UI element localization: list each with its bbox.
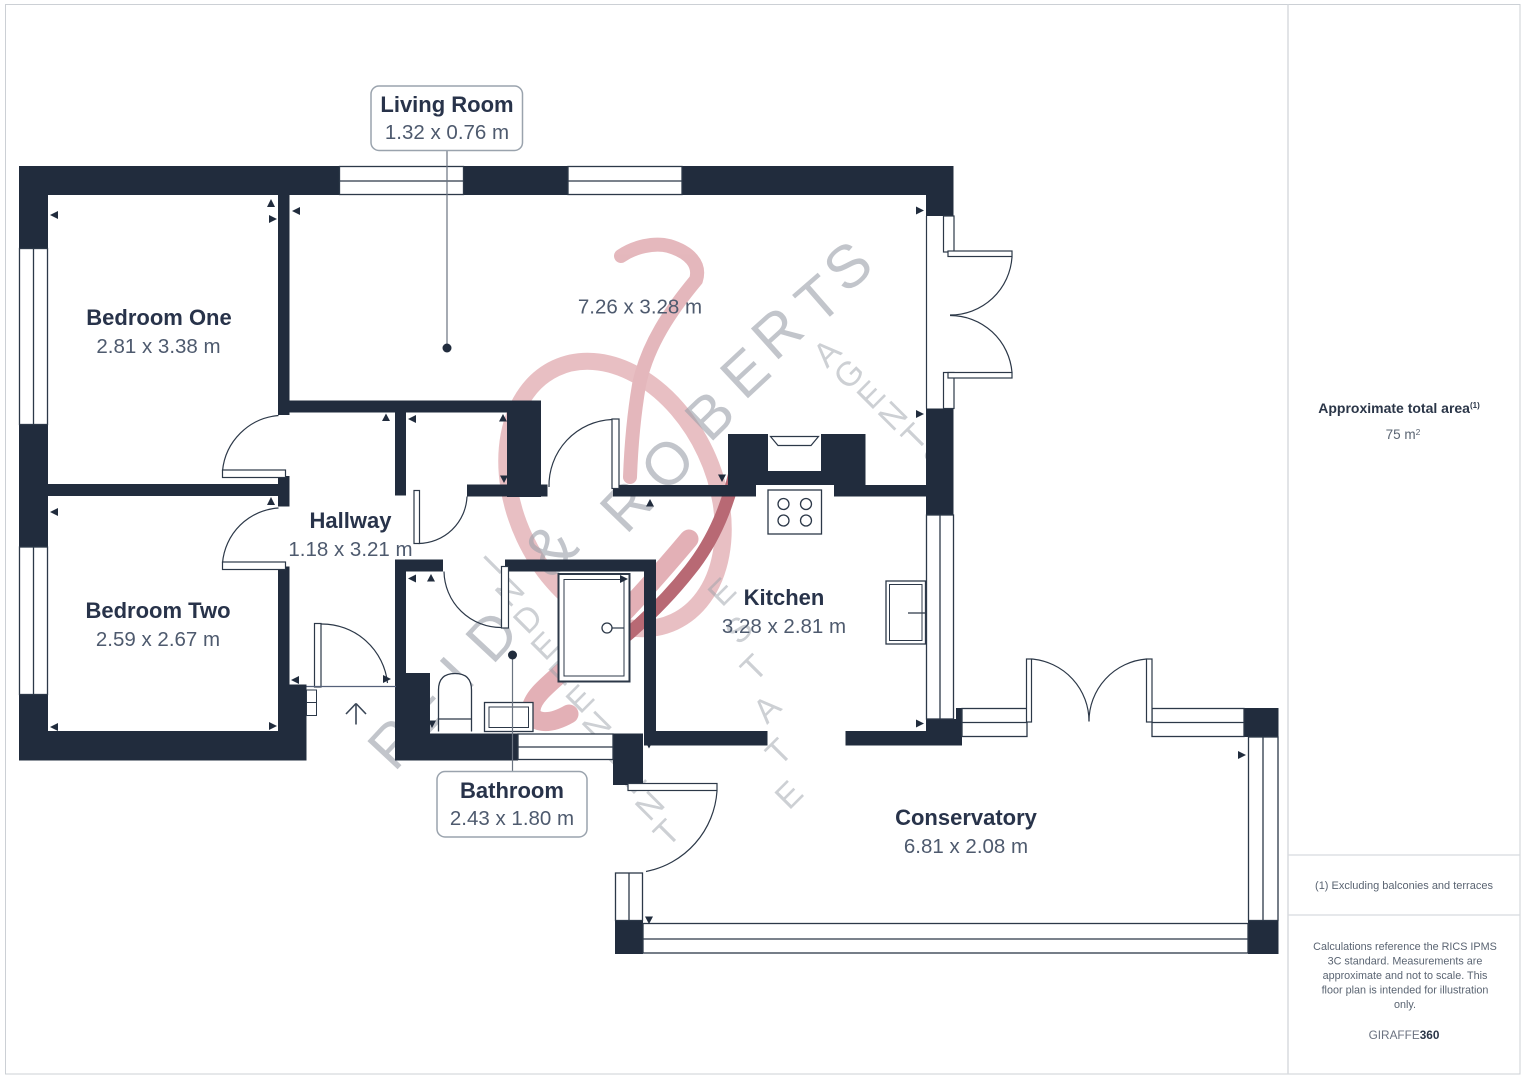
- svg-text:Bedroom One: Bedroom One: [86, 305, 231, 330]
- svg-text:Kitchen: Kitchen: [744, 585, 825, 610]
- svg-text:75 m2: 75 m2: [1386, 427, 1421, 442]
- svg-text:Calculations reference the RIC: Calculations reference the RICS IPMS: [1313, 941, 1497, 953]
- svg-text:floor plan is intended for ill: floor plan is intended for illustration: [1322, 985, 1489, 997]
- svg-text:2.59 x 2.67 m: 2.59 x 2.67 m: [96, 628, 220, 651]
- svg-text:1.18 x 3.21 m: 1.18 x 3.21 m: [288, 538, 412, 561]
- svg-text:6.81 x 2.08 m: 6.81 x 2.08 m: [904, 835, 1028, 858]
- svg-text:(1) Excluding balconies and te: (1) Excluding balconies and terraces: [1315, 880, 1493, 892]
- svg-text:1.32 x 0.76 m: 1.32 x 0.76 m: [385, 121, 509, 144]
- svg-text:2.43 x 1.80 m: 2.43 x 1.80 m: [450, 807, 574, 830]
- svg-text:2.81 x 3.38 m: 2.81 x 3.38 m: [96, 335, 220, 358]
- svg-text:3.28 x 2.81 m: 3.28 x 2.81 m: [722, 615, 846, 638]
- svg-text:approximate and not to scale.: approximate and not to scale. This: [1323, 970, 1488, 982]
- svg-text:Conservatory: Conservatory: [895, 805, 1038, 830]
- svg-text:3C standard. Measurements are: 3C standard. Measurements are: [1328, 956, 1483, 968]
- svg-text:GIRAFFE360: GIRAFFE360: [1369, 1028, 1440, 1042]
- svg-text:only.: only.: [1394, 999, 1416, 1011]
- svg-text:Bedroom Two: Bedroom Two: [85, 598, 230, 623]
- svg-text:Living Room: Living Room: [380, 92, 513, 117]
- svg-text:Approximate total area(1): Approximate total area(1): [1318, 400, 1480, 416]
- svg-text:7.26 x 3.28 m: 7.26 x 3.28 m: [578, 296, 702, 319]
- svg-text:Bathroom: Bathroom: [460, 778, 564, 803]
- svg-text:Hallway: Hallway: [310, 508, 393, 533]
